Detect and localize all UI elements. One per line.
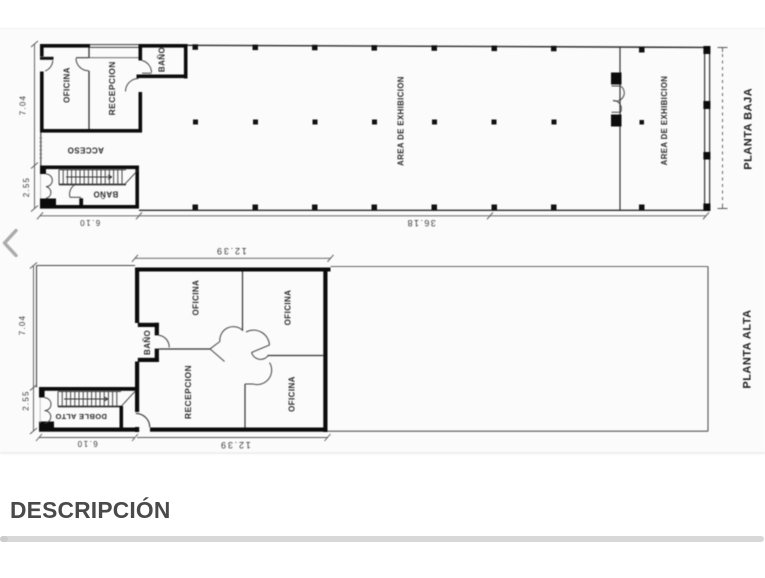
svg-text:BAÑO: BAÑO [93, 189, 118, 198]
svg-text:OFICINA: OFICINA [62, 67, 71, 103]
svg-text:12.39: 12.39 [215, 246, 247, 256]
svg-text:6.10: 6.10 [76, 439, 98, 448]
svg-text:ACCESO: ACCESO [67, 145, 104, 154]
svg-text:7.04: 7.04 [19, 95, 28, 115]
svg-text:OFICINA: OFICINA [284, 290, 293, 326]
svg-text:PLANTA BAJA: PLANTA BAJA [743, 88, 755, 170]
svg-text:OFICINA: OFICINA [287, 376, 296, 412]
svg-text:2.55: 2.55 [22, 177, 31, 197]
svg-text:BAÑO: BAÑO [157, 47, 166, 72]
svg-text:DOBLE ALTO: DOBLE ALTO [55, 412, 107, 421]
svg-text:AREA DE EXHIBICION: AREA DE EXHIBICION [397, 76, 406, 166]
svg-text:7.04: 7.04 [18, 315, 27, 335]
svg-text:OFICINA: OFICINA [191, 280, 200, 316]
svg-text:BAÑO: BAÑO [143, 330, 152, 355]
svg-text:RECEPCION: RECEPCION [183, 365, 193, 419]
svg-text:6.10: 6.10 [79, 218, 101, 227]
svg-text:RECEPCION: RECEPCION [107, 61, 117, 115]
svg-text:2.55: 2.55 [22, 390, 31, 410]
svg-text:12.39: 12.39 [219, 440, 251, 450]
svg-text:AREA DE EXHIBICION: AREA DE EXHIBICION [660, 76, 669, 166]
svg-text:PLANTA ALTA: PLANTA ALTA [742, 309, 754, 388]
svg-text:36.18: 36.18 [406, 218, 436, 228]
